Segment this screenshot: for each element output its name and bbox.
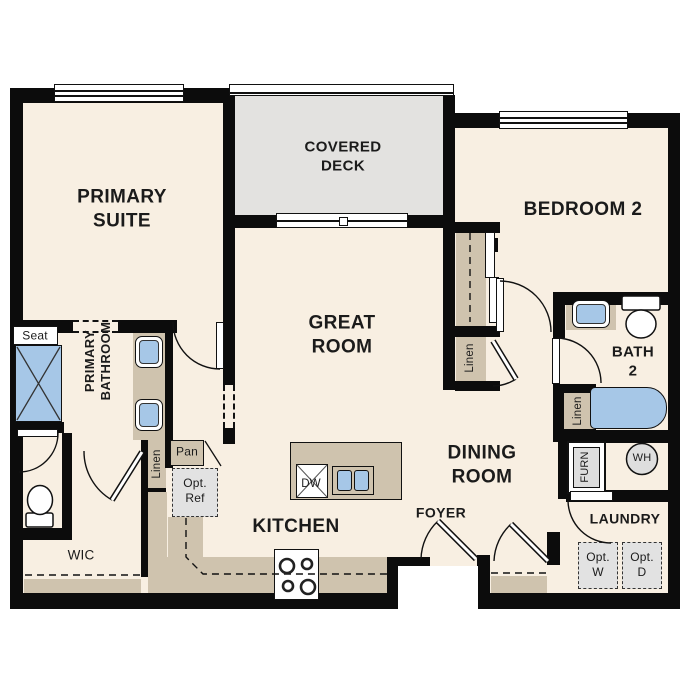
bypass-door [485, 232, 495, 278]
wall [443, 95, 455, 390]
range-stove [274, 549, 319, 600]
wall [455, 326, 500, 337]
wall [141, 440, 148, 577]
wall [10, 593, 680, 609]
kitchen-counter-mid [168, 517, 203, 557]
primary-shower [15, 345, 62, 422]
bedroom2-wardrobe [456, 228, 486, 326]
sink-basin [576, 304, 606, 324]
wall [223, 88, 235, 228]
label-water-heater: WH [633, 452, 652, 466]
bath2-sink [572, 300, 610, 328]
room-label-laundry: LAUNDRY [590, 510, 661, 528]
wall [477, 555, 490, 605]
wall [547, 532, 560, 565]
island-sink-basin [354, 470, 369, 491]
foyer-closet-shelf [491, 576, 547, 593]
wall [553, 384, 564, 442]
railing-line [230, 92, 453, 94]
door-leaf-bedroom2 [496, 278, 504, 332]
deck-railing [229, 84, 454, 96]
room-label-bedroom2: BEDROOM 2 [524, 198, 643, 222]
sink-basin [139, 403, 159, 427]
label-opt-dryer: Opt. D [630, 550, 653, 580]
utility-door-closed [570, 491, 613, 501]
label-linen-bath2: Linen [571, 396, 585, 425]
window-primary-suite [54, 84, 184, 102]
island-sink-basin [337, 470, 352, 491]
kitchen-counter-bottom [148, 557, 390, 593]
window-bedroom2 [499, 111, 628, 129]
wall [148, 488, 166, 492]
label-dishwasher: DW [301, 477, 321, 491]
sliding-door-deck [276, 213, 408, 228]
wall [553, 292, 565, 338]
cased-opening-great-room [223, 385, 235, 428]
label-furnace: FURN [579, 451, 593, 482]
room-label-wic: WIC [68, 548, 95, 565]
door-leaf-primary-suite [216, 322, 224, 369]
wic-shelf [24, 579, 141, 593]
entry-alcove [398, 566, 478, 609]
wall [10, 528, 72, 540]
room-label-foyer: FOYER [416, 504, 466, 522]
window-mullion [500, 122, 627, 124]
primary-sink-2 [135, 399, 163, 431]
room-label-primary-suite: PRIMARY SUITE [77, 185, 167, 233]
wall [455, 381, 500, 391]
room-label-primary-bathroom: PRIMARY BATHROOM [82, 322, 115, 401]
slider-mullion [339, 217, 348, 226]
label-pantry: Pan [176, 445, 198, 460]
wall [668, 113, 680, 605]
sink-basin [139, 340, 159, 364]
window-mullion [500, 117, 627, 119]
kitchen-counter-left [148, 492, 167, 557]
floor-plan: PRIMARY SUITE COVERED DECK BEDROOM 2 GRE… [0, 0, 687, 687]
wall [223, 228, 235, 385]
wall [223, 428, 235, 444]
window-mullion [55, 95, 183, 97]
window-mullion [55, 90, 183, 92]
room-label-great-room: GREAT ROOM [308, 311, 375, 359]
room-label-dining-room: DINING ROOM [448, 441, 517, 489]
room-label-covered-deck: COVERED DECK [305, 138, 382, 176]
label-opt-ref: Opt. Ref [183, 476, 206, 506]
wall [165, 327, 173, 440]
label-linen-coat: Linen [463, 343, 477, 372]
room-label-kitchen: KITCHEN [252, 515, 339, 539]
door-leaf-bath2 [552, 338, 560, 384]
label-seat: Seat [22, 329, 48, 344]
door-leaf-toilet-room [17, 429, 58, 437]
label-opt-washer: Opt. W [586, 550, 609, 580]
room-label-bath2: BATH 2 [612, 343, 654, 381]
primary-sink-1 [135, 336, 163, 368]
label-linen-hall: Linen [150, 449, 164, 478]
wall [62, 433, 72, 530]
bathtub [590, 387, 667, 429]
